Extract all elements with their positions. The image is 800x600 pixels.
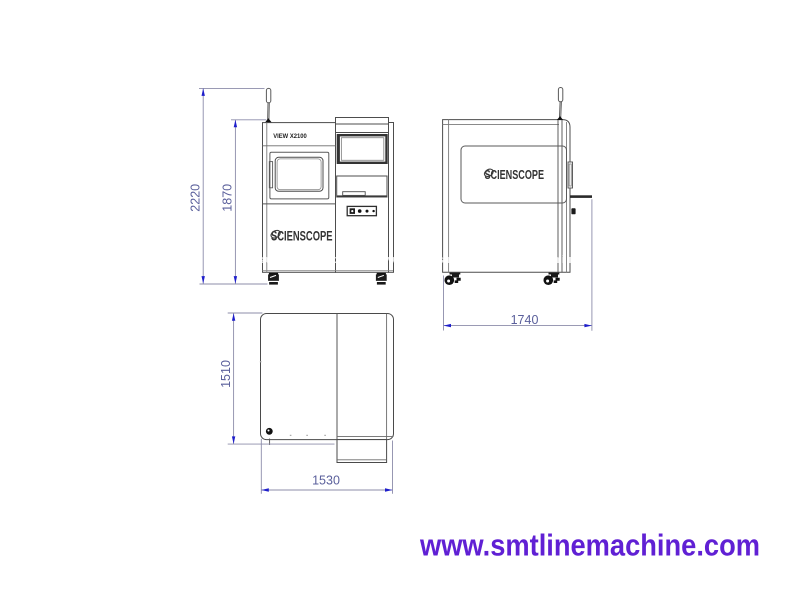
svg-text:1530: 1530 — [312, 473, 340, 487]
svg-text:SCIENSCOPE: SCIENSCOPE — [485, 167, 545, 182]
svg-text:1740: 1740 — [511, 313, 539, 327]
svg-text:SCIENSCOPE: SCIENSCOPE — [271, 229, 333, 244]
svg-text:2220: 2220 — [188, 184, 202, 212]
svg-text:1870: 1870 — [221, 184, 235, 212]
svg-text:1510: 1510 — [219, 360, 233, 388]
svg-text:www.smtlinemachine.com: www.smtlinemachine.com — [419, 529, 760, 563]
svg-text:achine.com www.smtlinemachine: achine.com www.smtlinemachine — [259, 254, 591, 266]
svg-text:VIEW X2100: VIEW X2100 — [273, 133, 307, 140]
